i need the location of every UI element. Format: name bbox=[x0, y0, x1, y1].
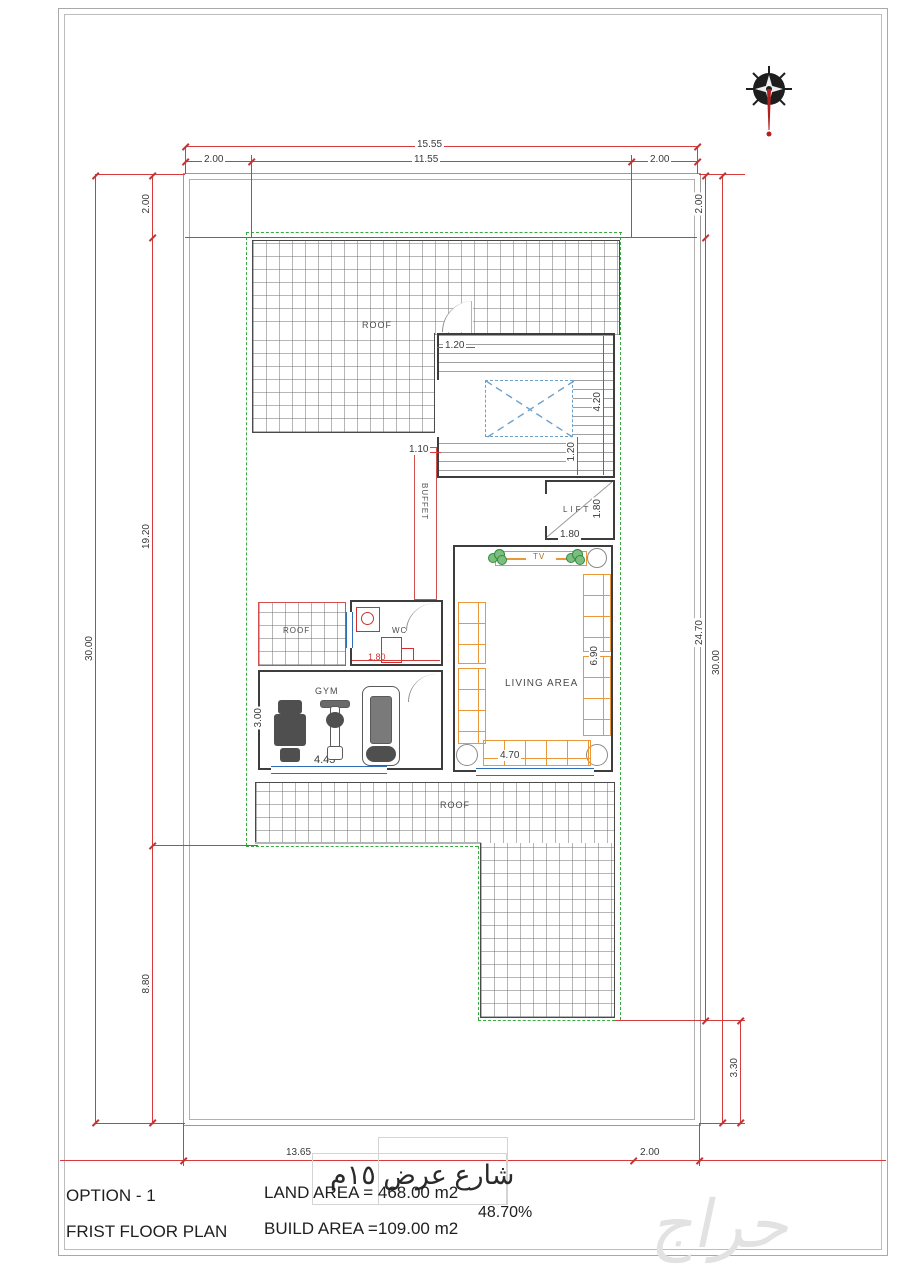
sofa-right-lower bbox=[583, 656, 611, 736]
sofa-left-lower bbox=[458, 668, 486, 744]
compass-icon bbox=[742, 62, 796, 142]
dim-stair-w: 1.20 bbox=[566, 440, 577, 463]
build-area-label: BUILD AREA =109.00 m2 bbox=[264, 1219, 458, 1239]
plan-name-label: FRIST FLOOR PLAN bbox=[66, 1222, 227, 1242]
side-table bbox=[456, 744, 478, 766]
room-label-living: LIVING AREA bbox=[505, 678, 578, 689]
roof-bottom-right bbox=[480, 843, 615, 1018]
setback-line-bottom-1 bbox=[246, 846, 478, 847]
setback-line-right bbox=[620, 232, 621, 1020]
room-label-roof-small: ROOF bbox=[283, 626, 310, 635]
dim-top-left: 2.00 bbox=[202, 154, 225, 165]
setback-line-left-2 bbox=[478, 846, 479, 1020]
gym-machine-icon bbox=[278, 700, 302, 714]
buffet-corridor bbox=[414, 447, 437, 600]
stair-landing bbox=[437, 380, 485, 437]
dim-left-bottom: 8.80 bbox=[141, 972, 152, 995]
gym-treadmill-base bbox=[366, 746, 396, 762]
gym-treadmill-belt bbox=[370, 696, 392, 744]
dim-right-inner: 24.70 bbox=[694, 618, 705, 647]
coverage-label: 48.70% bbox=[478, 1204, 532, 1222]
dim-bottom-right: 2.00 bbox=[638, 1147, 661, 1158]
roof-bottom-edge bbox=[255, 842, 481, 844]
lift-door-gap bbox=[543, 494, 547, 526]
dim-lift-h: 1.80 bbox=[592, 497, 603, 520]
room-label-roof-bottom: ROOF bbox=[440, 800, 470, 810]
dim-line-stair-w bbox=[577, 437, 578, 475]
land-area-label: LAND AREA = 468.00 m2 bbox=[264, 1183, 458, 1203]
dim-left-total: 30.00 bbox=[84, 634, 95, 663]
gym-bench-icon bbox=[327, 746, 343, 760]
sofa-right-upper bbox=[583, 574, 611, 652]
wc-sink-bowl bbox=[361, 612, 374, 625]
gym-window bbox=[271, 766, 387, 774]
dim-line-right-inner bbox=[705, 175, 706, 1020]
setback-line-left bbox=[246, 232, 247, 846]
dim-gym-h: 3.00 bbox=[253, 706, 264, 729]
sofa-left-upper bbox=[458, 602, 486, 664]
floor-plan-sheet: ROOF ROOF ROOF 1.20 4.20 1.20 1.10 BUFFE… bbox=[0, 0, 900, 1268]
stair-void bbox=[485, 380, 573, 437]
roof-top-upper bbox=[252, 240, 620, 335]
dim-right-total: 30.00 bbox=[711, 648, 722, 677]
dim-bottom-main: 13.65 bbox=[284, 1147, 313, 1158]
dim-line-left-split bbox=[152, 175, 153, 1122]
gym-machine-icon bbox=[274, 714, 306, 746]
dim-corridor: 1.10 bbox=[407, 444, 430, 455]
dim-line-right-bottom bbox=[740, 1020, 741, 1122]
room-label-lift: LIFT bbox=[563, 505, 591, 514]
dim-lift-w: 1.80 bbox=[558, 529, 581, 540]
dim-line-left-total bbox=[95, 175, 96, 1122]
setback-line-top bbox=[246, 232, 622, 233]
setback-line-bottom-2 bbox=[478, 1020, 620, 1021]
dim-top-right: 2.00 bbox=[648, 154, 671, 165]
dim-line-right-total bbox=[722, 175, 723, 1122]
living-window bbox=[476, 768, 594, 776]
roof-top-lower bbox=[252, 333, 435, 433]
dim-left-setback: 2.00 bbox=[141, 192, 152, 215]
dim-stair-door: 1.20 bbox=[443, 340, 466, 351]
room-label-buffet: BUFFET bbox=[420, 483, 429, 520]
room-label-tv: TV bbox=[533, 552, 545, 561]
plant-icon bbox=[566, 549, 584, 565]
dim-stair-h: 4.20 bbox=[592, 390, 603, 413]
setback-red-line bbox=[185, 237, 697, 238]
dim-line-top-split bbox=[185, 161, 697, 162]
gym-machine-icon bbox=[280, 748, 300, 762]
gym-bench-icon bbox=[326, 712, 344, 728]
dim-living-h: 6.90 bbox=[589, 644, 600, 667]
dim-top-mid: 11.55 bbox=[412, 154, 440, 165]
dim-right-setback: 2.00 bbox=[694, 192, 705, 215]
plant-icon bbox=[488, 549, 506, 565]
room-label-wc: WC bbox=[392, 626, 407, 635]
side-table bbox=[587, 548, 607, 568]
dim-line-stair-h bbox=[603, 336, 604, 475]
dim-left-mid: 19.20 bbox=[141, 522, 152, 551]
watermark: حراج bbox=[647, 1186, 802, 1263]
dim-living-w: 4.70 bbox=[498, 750, 521, 761]
dim-wc-w: 1.80 bbox=[366, 653, 388, 663]
stair-door-leaf bbox=[471, 301, 472, 333]
room-label-roof-top: ROOF bbox=[362, 320, 392, 330]
roof-bottom-upper bbox=[255, 782, 615, 844]
option-label: OPTION - 1 bbox=[66, 1186, 156, 1206]
dim-top-total: 15.55 bbox=[415, 139, 444, 150]
room-label-gym: GYM bbox=[315, 686, 339, 696]
wc-window bbox=[346, 612, 353, 648]
dim-right-bottom: 3.30 bbox=[729, 1056, 740, 1079]
